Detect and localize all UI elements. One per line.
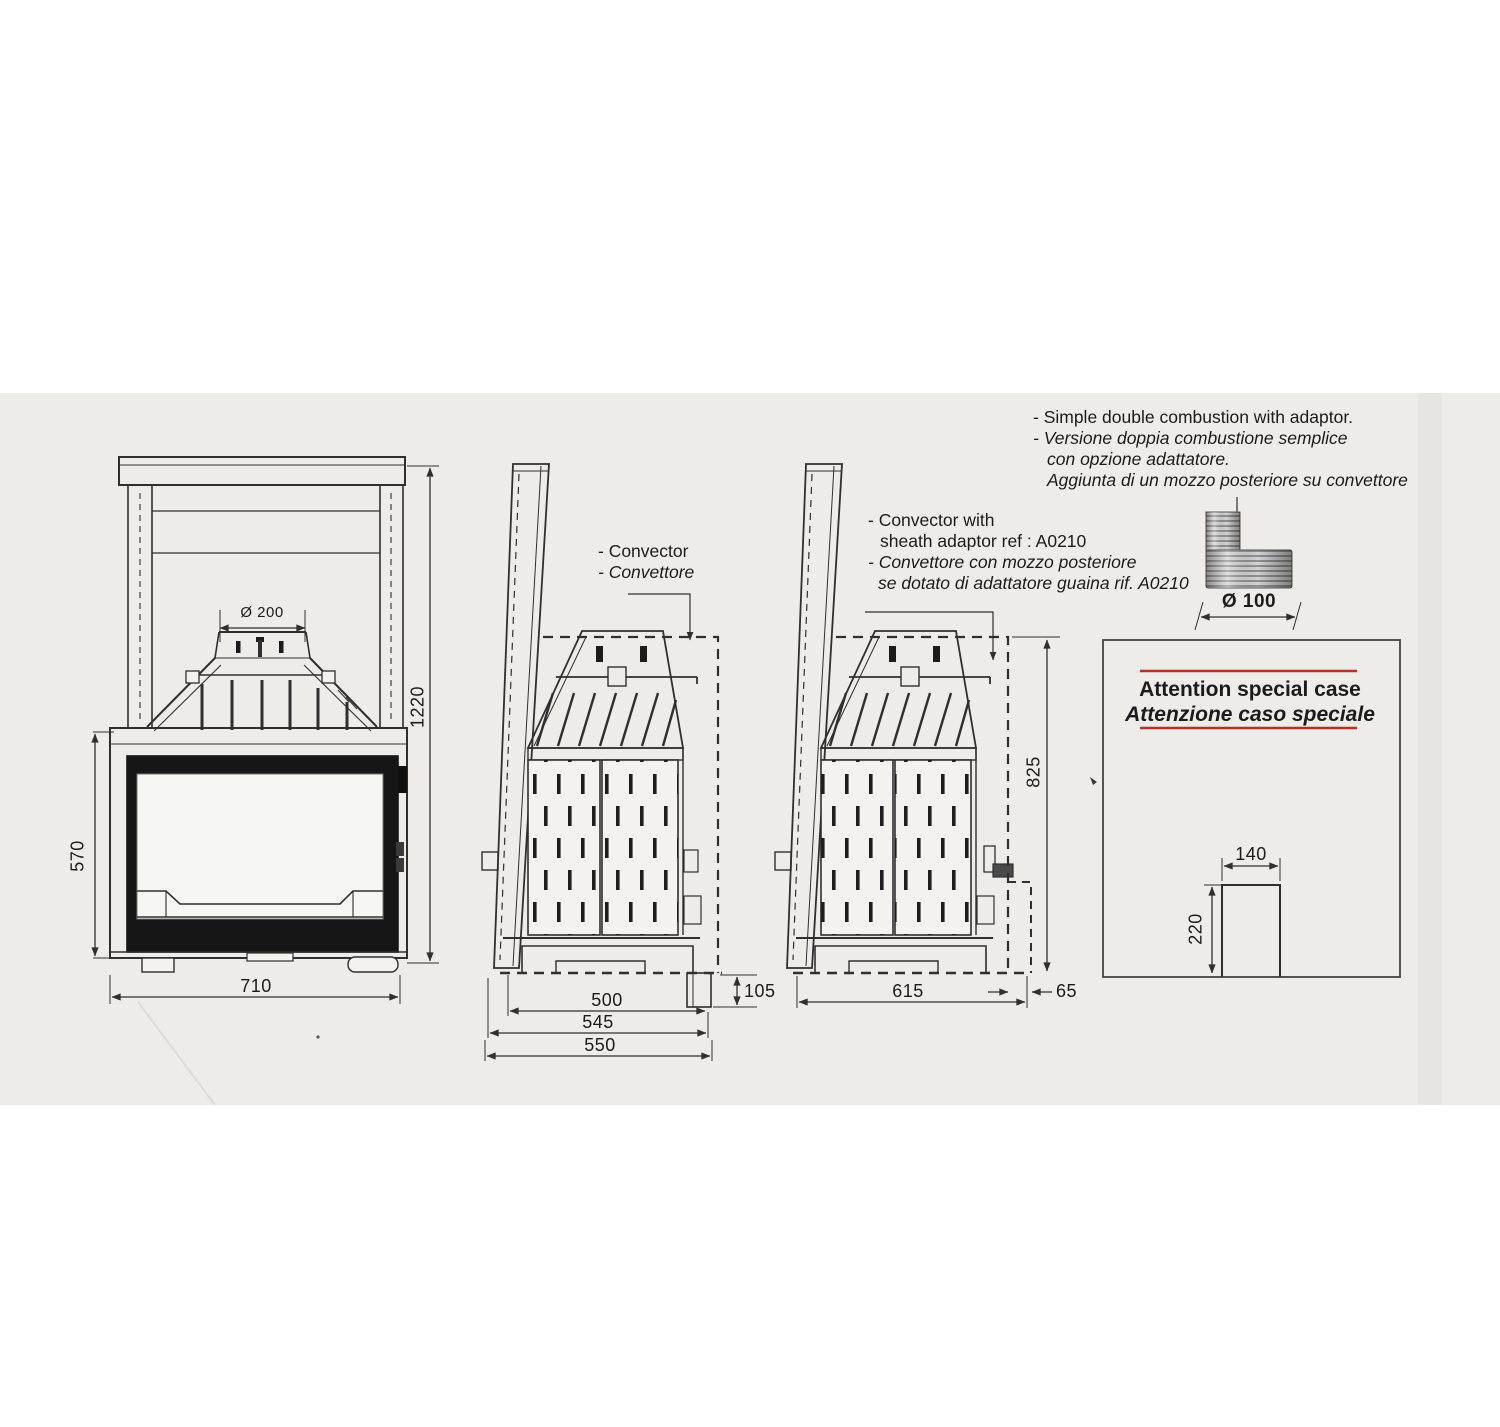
top-right-note: - Simple double combustion with adaptor.… [1033, 407, 1408, 491]
technical-sheet: - Simple double combustion with adaptor.… [0, 0, 1500, 1427]
sheath-line-it2: se dotato di adattatore guaina rif. A021… [868, 573, 1189, 594]
note-line-en: - Simple double combustion with adaptor. [1033, 407, 1408, 428]
special-case-title-it: Attenzione caso speciale [1125, 703, 1375, 727]
special-case-title-en: Attention special case [1139, 678, 1361, 702]
convector-en: - Convector [598, 541, 694, 562]
dim-rear-offset: 65 [1056, 981, 1077, 1002]
convector-it: - Convettore [598, 562, 694, 583]
dim-adaptor-diameter: Ø 100 [1222, 591, 1276, 613]
note-line-it2: con opzione adattatore. [1033, 449, 1408, 470]
dim-duct-width: 140 [1235, 844, 1267, 865]
side-dim-lines [485, 975, 757, 1061]
note-line-it3: Aggiunta di un mozzo posteriore su conve… [1033, 470, 1408, 491]
scan-artifacts [138, 393, 1442, 1105]
dim-flue-diameter: Ø 200 [240, 604, 283, 621]
front-view-drawing [93, 457, 439, 1004]
dim-body-depth: 500 [591, 990, 623, 1011]
dim-firebox-height: 570 [68, 840, 89, 872]
dim-rear-drop: 105 [744, 981, 776, 1002]
sheath-line-it1: - Convettore con mozzo posteriore [868, 552, 1189, 573]
note-line-it1: - Versione doppia combustione semplice [1033, 428, 1408, 449]
sheath-line-en1: - Convector with [868, 510, 1189, 531]
dim-total-depth: 550 [584, 1035, 616, 1056]
dim-adaptor-depth: 615 [892, 981, 924, 1002]
dim-front-width: 710 [240, 976, 272, 997]
dim-total-height: 1220 [408, 686, 429, 728]
sheath-adaptor-note: - Convector with sheath adaptor ref : A0… [868, 510, 1189, 594]
sheath-line-en2: sheath adaptor ref : A0210 [868, 531, 1189, 552]
dim-duct-height: 220 [1186, 913, 1207, 945]
dim-adaptor-height: 825 [1024, 756, 1045, 788]
special-case-dim-lines [1204, 858, 1280, 973]
convector-label: - Convector - Convettore [598, 541, 694, 583]
dim-mid-depth: 545 [582, 1012, 614, 1033]
